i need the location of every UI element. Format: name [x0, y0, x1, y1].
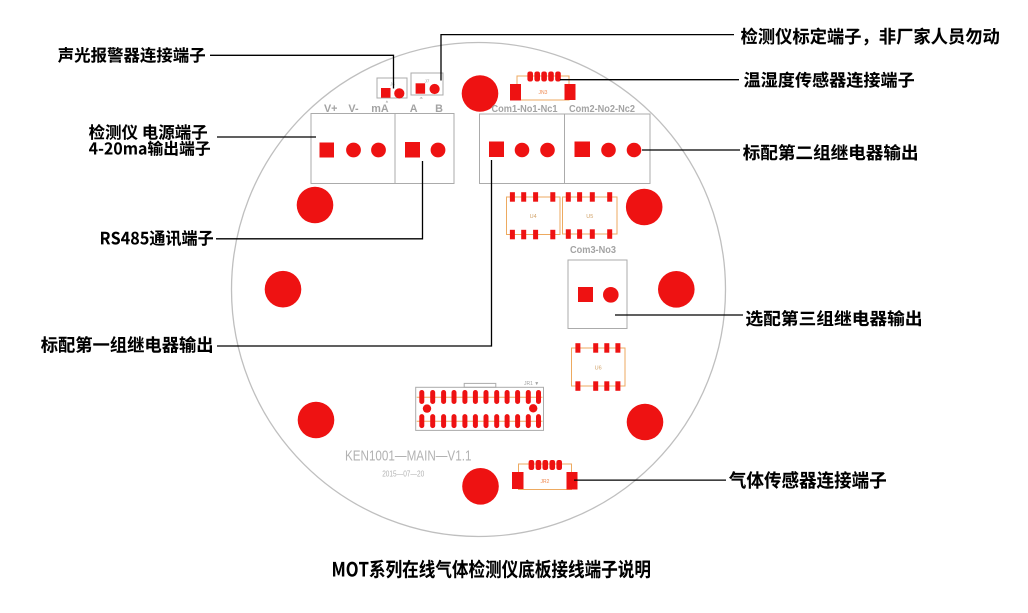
svg-text:JR1 ▼: JR1 ▼ — [524, 381, 539, 387]
svg-text:JR2: JR2 — [541, 479, 550, 485]
svg-text:Com2-No2-Nc2: Com2-No2-Nc2 — [569, 103, 635, 115]
svg-text:mA: mA — [371, 103, 389, 115]
svg-text:Com3-No3: Com3-No3 — [570, 244, 616, 256]
svg-text:B: B — [435, 103, 443, 115]
svg-text:V+: V+ — [324, 103, 338, 115]
svg-text:U6: U6 — [595, 366, 602, 372]
svg-text:JN3: JN3 — [539, 90, 548, 96]
svg-text:KEN1001—MAIN—V1.1: KEN1001—MAIN—V1.1 — [345, 448, 472, 465]
svg-text:V-: V- — [348, 103, 359, 115]
svg-text:U4: U4 — [530, 214, 537, 220]
svg-text:J6: J6 — [390, 82, 395, 87]
svg-text:Com1-No1-Nc1: Com1-No1-Nc1 — [492, 103, 558, 115]
svg-text:A: A — [410, 103, 418, 115]
svg-text:2015—07—20: 2015—07—20 — [382, 470, 424, 479]
svg-text:J7: J7 — [425, 79, 430, 84]
svg-text:U5: U5 — [586, 214, 593, 220]
